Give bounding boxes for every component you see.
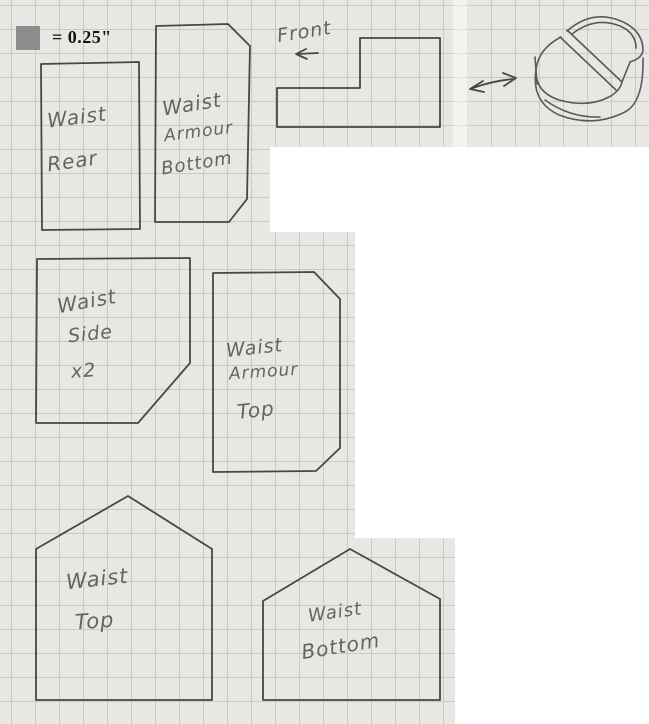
legend-scale-text: = 0.25" [52, 27, 112, 48]
waist-side-label-line2: Side [67, 323, 114, 347]
waist-armour-top-label-line3: Top [236, 398, 276, 422]
waist-bottom-outline [263, 549, 440, 700]
pattern-scan-page: = 0.25" Front Waist Rear Waist Armour Bo… [0, 0, 649, 724]
double-headed-arrow [470, 73, 516, 92]
waist-rear-label-line2: Rear [46, 148, 99, 175]
waist-top-label-line2: Top [74, 610, 115, 634]
waist-armour-top-label-line2: Armour [228, 362, 298, 384]
legend-scale-square [16, 26, 40, 50]
assembled-3d-sketch [535, 17, 643, 121]
waist-top-outline [36, 496, 212, 700]
front-arrow [296, 49, 318, 59]
waist-side-label-line3: x2 [70, 361, 97, 382]
